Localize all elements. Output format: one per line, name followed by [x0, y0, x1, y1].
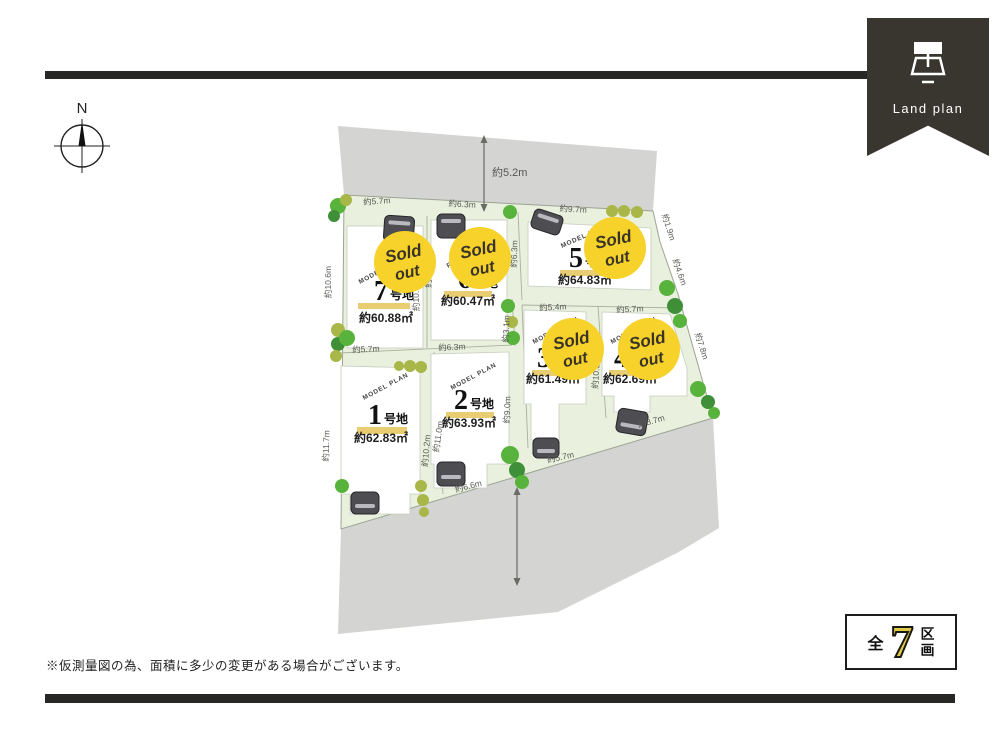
tree-icon [328, 210, 340, 222]
dim-label: 約5.7m [352, 343, 380, 354]
lot-area: 約63.93㎡ [442, 415, 496, 430]
dim-label: 約5.4m [539, 301, 567, 312]
tree-icon [606, 205, 618, 217]
tree-icon [415, 361, 427, 373]
dim-label: 約9.7m [559, 203, 587, 214]
tree-icon [404, 360, 416, 372]
tree-icon [340, 194, 352, 206]
tree-icon [501, 446, 519, 464]
tree-icon [515, 475, 529, 489]
lot-number: 1 [368, 400, 382, 431]
dim-label: 約6.3m [448, 198, 476, 209]
tree-icon [690, 381, 706, 397]
dim-label: 約1.9m [660, 212, 678, 241]
lot-number-suffix: 号地 [384, 411, 408, 426]
tree-icon [394, 361, 404, 371]
tree-icon [701, 395, 715, 409]
land-plan-page: { "ribbon": { "label": "Land plan" }, "c… [0, 0, 1000, 750]
disclaimer-note: ※仮測量図の為、面積に多少の変更がある場合がございます。 [46, 655, 409, 674]
total-lots-unit-line1: 区 [921, 626, 935, 642]
dim-label: 約6.3m [438, 341, 466, 352]
tree-icon [659, 280, 675, 296]
dim-label: 約5.7m [363, 195, 391, 207]
tree-icon [618, 205, 630, 217]
dim-label: 約10.6m [323, 266, 333, 298]
lot-area: 約60.47㎡ [441, 293, 495, 308]
tree-icon [419, 507, 429, 517]
lot-number: 5 [569, 243, 583, 274]
tree-icon [330, 350, 342, 362]
lot-area: 約60.88㎡ [359, 310, 413, 325]
lot-number: 2 [454, 385, 468, 416]
tree-icon [503, 205, 517, 219]
tree-icon [667, 298, 683, 314]
tree-icon [417, 494, 429, 506]
tree-icon [501, 299, 515, 313]
tree-icon [335, 479, 349, 493]
dim-label: 約9.0m [502, 396, 513, 424]
total-lots-count: 7 [891, 619, 914, 665]
road-width-label: 約5.2m [492, 165, 527, 179]
dim-label: 約11.7m [320, 430, 331, 462]
tree-icon [631, 206, 643, 218]
dim-label: 約5.7m [616, 303, 644, 314]
lot-area: 約62.83㎡ [354, 430, 408, 445]
total-lots-prefix: 全 [867, 630, 883, 654]
tree-icon [708, 407, 720, 419]
tree-icon [673, 314, 687, 328]
total-lots-unit-line2: 画 [921, 642, 935, 658]
dim-label: 約3.1m [501, 315, 512, 343]
tree-icon [339, 330, 355, 346]
total-lots-unit: 区 画 [921, 626, 935, 658]
total-lots-box: 全 7 区 画 [845, 614, 957, 670]
car-marker [351, 492, 379, 514]
lot-number-suffix: 号地 [470, 396, 494, 411]
tree-icon [415, 480, 427, 492]
lot-number-underline [358, 303, 410, 309]
